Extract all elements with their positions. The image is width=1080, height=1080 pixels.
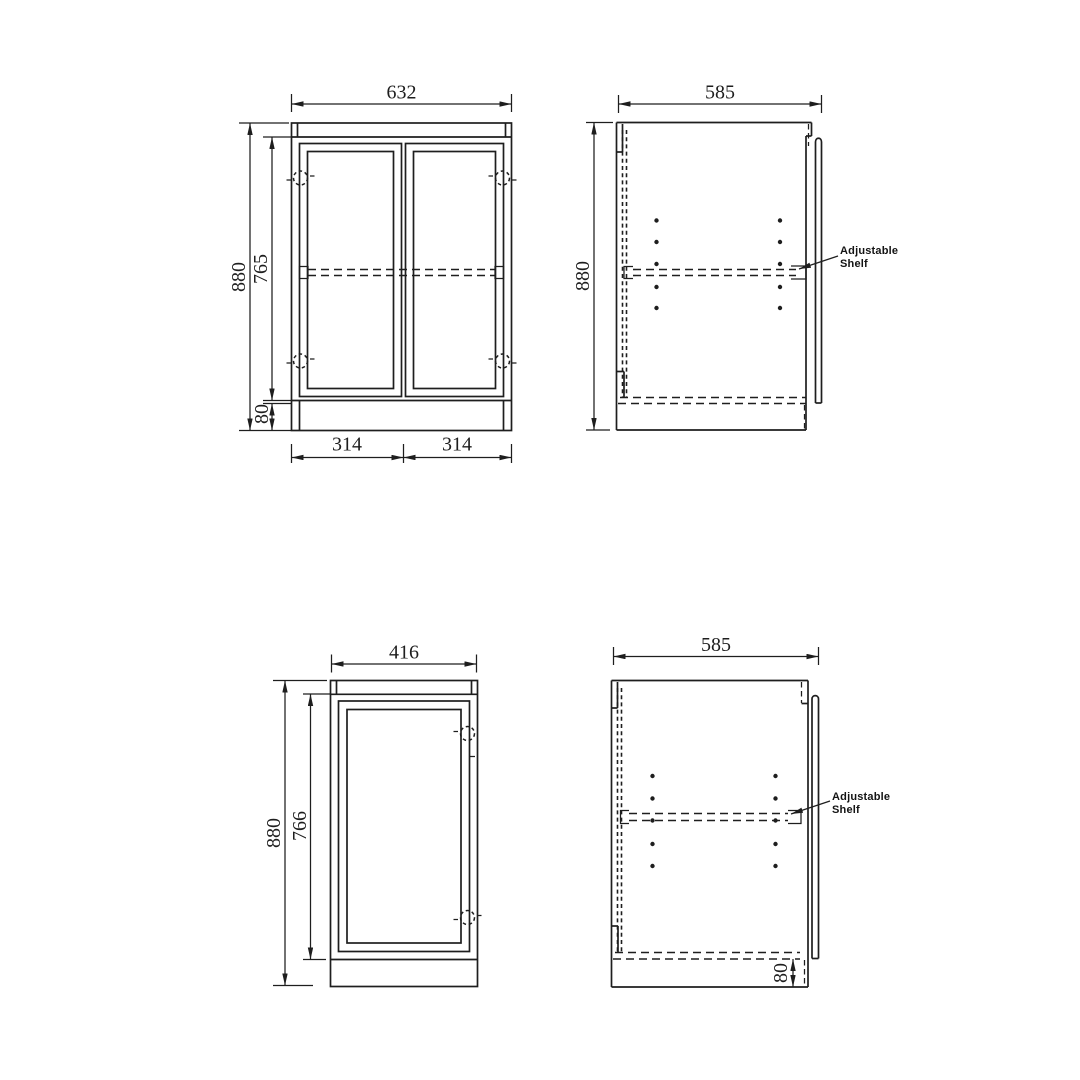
front-view-double-door: 632 880 765 80 314 314: [228, 82, 517, 464]
adjustable-shelf-label-line2: Shelf: [832, 804, 860, 816]
dim-text-height: 880: [572, 261, 594, 291]
cabinet-drawing-svg: 632 880 765 80 314 314: [0, 0, 1080, 1080]
bottom-panel-dashed: [618, 398, 806, 430]
dim-text-right-door-width: 314: [442, 434, 472, 456]
dimension-height-880: 880: [572, 123, 613, 431]
adjustable-shelf-callout: Adjustable Shelf: [799, 245, 898, 270]
side-view-lower: 585 80 Adjustable Shelf: [612, 634, 891, 987]
dimension-plinth-80: 80: [251, 404, 273, 431]
adjustable-shelf-callout: Adjustable Shelf: [791, 791, 890, 816]
door: [339, 701, 470, 952]
dimension-depth-585: 585: [614, 634, 819, 665]
door-side-profile: [812, 696, 819, 959]
adjustable-shelf-label-line1: Adjustable: [840, 245, 898, 257]
adjustable-shelf-dashed-line: [624, 266, 806, 279]
adjustable-shelf-label-line1: Adjustable: [832, 791, 890, 803]
dimension-width-632: 632: [292, 82, 512, 113]
dim-text-door-height: 766: [289, 811, 311, 841]
carcass-outline: [612, 681, 809, 988]
side-view-upper: 585 880 Adjustable Shelf: [572, 82, 898, 431]
door-side-profile: [816, 138, 822, 403]
dim-text-plinth: 80: [251, 404, 273, 424]
dimension-plinth-80: 80: [770, 959, 793, 987]
dim-text-width: 416: [389, 642, 419, 664]
dim-text-width: 632: [387, 82, 417, 104]
dim-text-depth: 585: [701, 634, 731, 656]
hinge-icon: [454, 727, 476, 757]
carcass-outline: [331, 681, 478, 987]
dim-text-height: 880: [228, 262, 250, 292]
dimension-door-widths-314: 314 314: [292, 434, 512, 464]
dimension-door-height-765: 765: [250, 137, 291, 404]
front-view-single-door: 416 880 766: [263, 642, 482, 987]
dimension-width-416: 416: [332, 642, 477, 673]
dimension-depth-585: 585: [619, 82, 822, 114]
adjustable-shelf-label-line2: Shelf: [840, 258, 868, 270]
dim-text-plinth: 80: [770, 963, 792, 983]
dim-text-depth: 585: [705, 82, 735, 104]
shelf-pin-holes: [654, 218, 782, 310]
back-panel-dashed: [617, 124, 627, 397]
dimension-door-height-766: 766: [289, 694, 330, 960]
dim-text-left-door-width: 314: [332, 434, 362, 456]
dim-text-height: 880: [263, 818, 285, 848]
technical-drawing-page: 632 880 765 80 314 314: [0, 0, 1080, 1080]
dim-text-door-height: 765: [250, 254, 272, 284]
